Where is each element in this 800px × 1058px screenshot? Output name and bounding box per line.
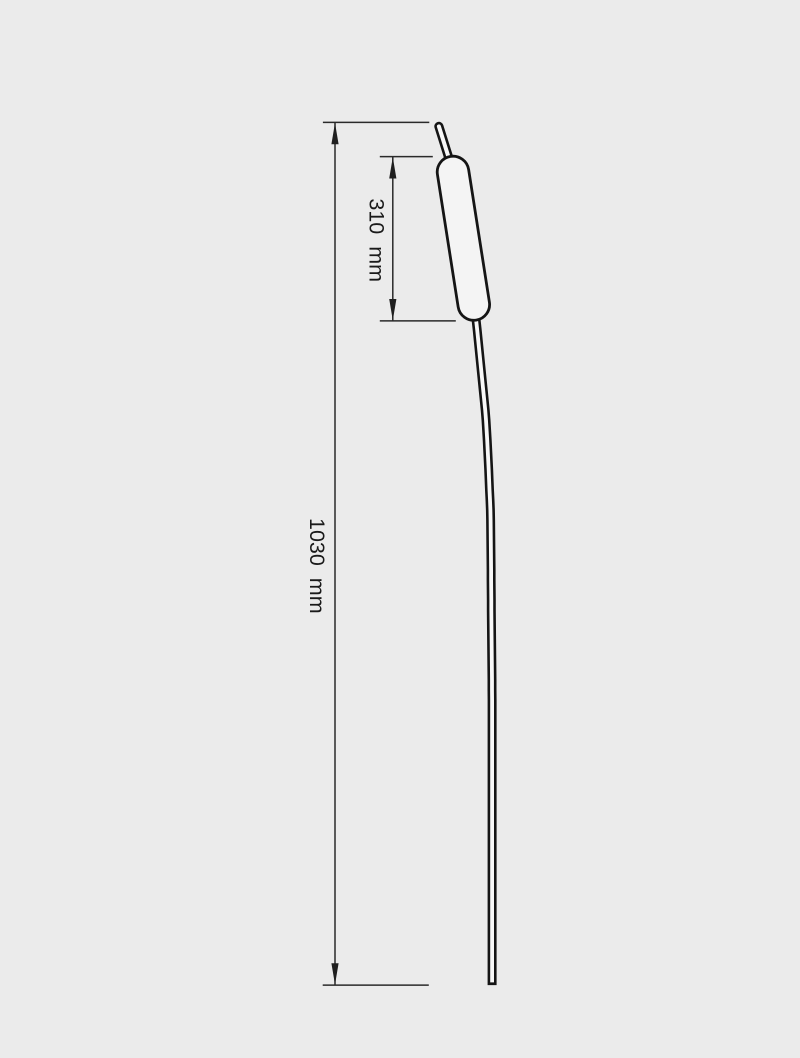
svg-text:1030 mm: 1030 mm <box>305 518 329 614</box>
svg-text:310 mm: 310 mm <box>365 198 389 282</box>
